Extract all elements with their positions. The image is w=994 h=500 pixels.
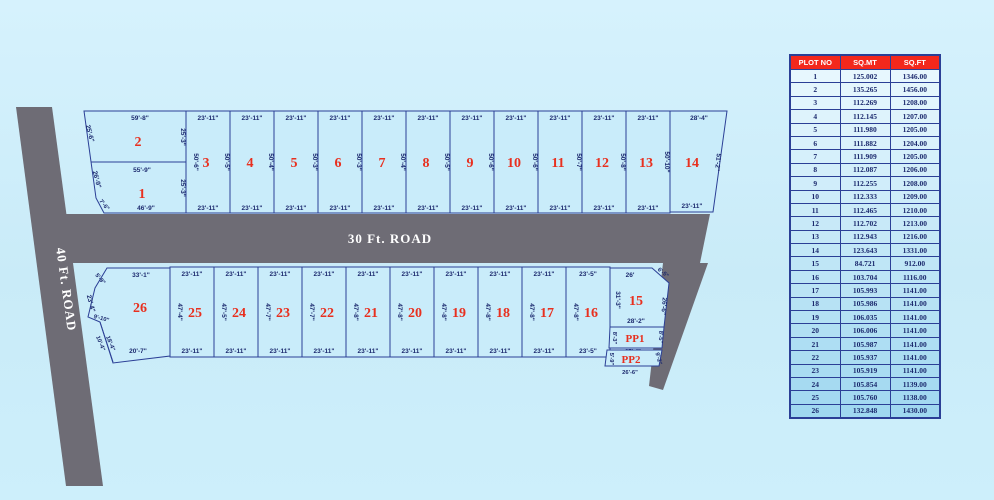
plot-12-number: 12 (595, 156, 609, 171)
table-cell: 10 (790, 190, 840, 203)
table-row: 4112.1451207.00 (790, 110, 940, 123)
plot-19-dim-left: 47'-8" (440, 303, 447, 321)
table-cell: 16 (790, 270, 840, 283)
table-cell: 18 (790, 297, 840, 310)
table-cell: 112.087 (840, 163, 890, 176)
table-row: 11112.4651210.00 (790, 203, 940, 216)
plot-18-dim-top: 23'-11" (490, 271, 511, 278)
plot-17-dim-bottom: 23'-11" (534, 348, 555, 355)
site-plan-canvas: 40 Ft. ROAD 30 Ft. ROAD 59'-8" 2 25'-3" … (0, 0, 994, 500)
plot-16-dim-left: 47'-8" (572, 303, 579, 321)
table-row: 1584.721912.00 (790, 257, 940, 270)
plot-26-dim-bottom: 20'-7" (129, 348, 147, 355)
plot-15-dim-left: 31'-3" (614, 291, 621, 309)
table-cell: 105.919 (840, 364, 890, 377)
table-row: 22105.9371141.00 (790, 351, 940, 364)
table-cell: 1141.00 (890, 324, 940, 337)
plot-21-dim-bottom: 23'-11" (358, 348, 379, 355)
plot-pp2-dim-left: 5'-9" (608, 353, 614, 366)
plot-19-number: 19 (452, 306, 466, 321)
plot-8-dim-right: 50'-5" (443, 153, 450, 171)
table-cell: 1205.00 (890, 123, 940, 136)
plot-2-dim-top: 59'-8" (131, 115, 149, 122)
plot-17-dim-top: 23'-11" (534, 271, 555, 278)
table-header-row: PLOT NOSQ.MTSQ.FT (790, 55, 940, 70)
table-cell: 22 (790, 351, 840, 364)
table-header-cell: PLOT NO (790, 55, 840, 70)
plot-15-number: 15 (629, 294, 643, 309)
table-cell: 123.643 (840, 244, 890, 257)
table-cell: 7 (790, 150, 840, 163)
plot-12-dim-right: 50'-8" (619, 153, 626, 171)
plot-17-dim-left: 47'-8" (528, 303, 535, 321)
table-cell: 912.00 (890, 257, 940, 270)
plot-pp2-number: PP2 (622, 354, 641, 366)
table-row: 9112.2551208.00 (790, 177, 940, 190)
table-cell: 2 (790, 83, 840, 96)
plot-13-dim-bottom: 23'-11" (638, 205, 659, 212)
table-cell: 112.333 (840, 190, 890, 203)
table-row: 10112.3331209.00 (790, 190, 940, 203)
table-cell: 1331.00 (890, 244, 940, 257)
plot-26-group: 33'-1" 5'-9" 23'-4" 9'-10" 10'-4" 18'-4"… (85, 268, 170, 363)
table-row: 1125.0021346.00 (790, 70, 940, 83)
table-cell: 1 (790, 70, 840, 83)
table-cell: 111.909 (840, 150, 890, 163)
plot-5-dim-top: 23'-11" (286, 115, 307, 122)
table-row: 12112.7021213.00 (790, 217, 940, 230)
plot-24-dim-bottom: 23'-11" (226, 348, 247, 355)
table-cell: 111.980 (840, 123, 890, 136)
plot-5-dim-right: 50'-3" (311, 153, 318, 171)
table-cell: 1430.00 (890, 404, 940, 418)
table-cell: 112.255 (840, 177, 890, 190)
table-cell: 106.006 (840, 324, 890, 337)
plot-7-dim-right: 50'-4" (399, 153, 406, 171)
plot-14-dim-bottom: 23'-11" (682, 203, 703, 210)
table-cell: 25 (790, 391, 840, 404)
plot-3-dim-left: 50'-6" (192, 153, 199, 171)
table-row: 21105.9871141.00 (790, 337, 940, 350)
road-30ft-label: 30 Ft. ROAD (348, 231, 432, 246)
plot-3-dim-top: 23'-11" (198, 115, 219, 122)
table-cell: 105.993 (840, 284, 890, 297)
table-row: 24105.8541139.00 (790, 377, 940, 390)
table-cell: 135.265 (840, 83, 890, 96)
plot-8-dim-top: 23'-11" (418, 115, 439, 122)
table-cell: 17 (790, 284, 840, 297)
table-cell: 6 (790, 136, 840, 149)
plot-12-dim-bottom: 23'-11" (594, 205, 615, 212)
table-cell: 1205.00 (890, 150, 940, 163)
table-row: 19106.0351141.00 (790, 311, 940, 324)
table-cell: 1141.00 (890, 351, 940, 364)
table-row: 18105.9861141.00 (790, 297, 940, 310)
table-cell: 3 (790, 96, 840, 109)
plot-13-dim-right: 50'-10" (663, 151, 670, 172)
plot-18-dim-bottom: 23'-11" (490, 348, 511, 355)
table-cell: 103.704 (840, 270, 890, 283)
table-cell: 1141.00 (890, 284, 940, 297)
plot-16-dim-top: 23'-5" (579, 271, 597, 278)
plot-25-dim-top: 23'-11" (182, 271, 203, 278)
table-row: 8112.0871206.00 (790, 163, 940, 176)
plot-14-dim-top: 28'-4" (690, 115, 708, 122)
plot-10-dim-top: 23'-11" (506, 115, 527, 122)
table-cell: 5 (790, 123, 840, 136)
table-row: 25105.7601138.00 (790, 391, 940, 404)
plot-5-dim-bottom: 23'-11" (286, 205, 307, 212)
plot-7-number: 7 (379, 156, 386, 171)
table-cell: 12 (790, 217, 840, 230)
table-header-cell: SQ.MT (840, 55, 890, 70)
table-cell: 112.465 (840, 203, 890, 216)
table-cell: 112.943 (840, 230, 890, 243)
table-cell: 112.145 (840, 110, 890, 123)
table-cell: 105.986 (840, 297, 890, 310)
plot-20-dim-bottom: 23'-11" (402, 348, 423, 355)
table-cell: 84.721 (840, 257, 890, 270)
plot-22-dim-bottom: 23'-11" (314, 348, 335, 355)
plot-pp2-dim-bottom: 26'-6" (622, 370, 638, 376)
table-cell: 106.035 (840, 311, 890, 324)
plot-9-dim-top: 23'-11" (462, 115, 483, 122)
table-row: 6111.8821204.00 (790, 136, 940, 149)
plot-4-dim-bottom: 23'-11" (242, 205, 263, 212)
plot-2-number: 2 (135, 135, 142, 150)
table-cell: 1139.00 (890, 377, 940, 390)
plot-4-dim-right: 50'-4" (267, 153, 274, 171)
plot-25-dim-bottom: 23'-11" (182, 348, 203, 355)
plot-19-dim-top: 23'-11" (446, 271, 467, 278)
table-cell: 19 (790, 311, 840, 324)
plot-1-dim-top: 55'-9" (133, 167, 151, 174)
table-cell: 1138.00 (890, 391, 940, 404)
plot-26-dim-diag-a: 10'-4" (94, 335, 106, 352)
table-cell: 112.269 (840, 96, 890, 109)
plot-1-dim-right: 25'-3" (179, 179, 186, 197)
plot-15-group: 26' 6'-5" 31'-3" 26'-6" 15 28'-2" (610, 267, 670, 327)
plot-2-dim-right: 25'-3" (179, 128, 186, 146)
table-cell: 132.848 (840, 404, 890, 418)
plot-3-number: 3 (203, 156, 210, 171)
table-cell: 13 (790, 230, 840, 243)
plot-12-dim-top: 23'-11" (594, 115, 615, 122)
plot-3-dim-right: 50'-5" (223, 153, 230, 171)
table-cell: 9 (790, 177, 840, 190)
plot-20-number: 20 (408, 306, 422, 321)
table-cell: 105.937 (840, 351, 890, 364)
area-table: PLOT NOSQ.MTSQ.FT1125.0021346.002135.265… (789, 54, 941, 419)
plot-pp1-dim-right: 8'-5" (657, 331, 663, 344)
plot-5-number: 5 (291, 156, 298, 171)
table-cell: 1141.00 (890, 337, 940, 350)
table-row: 16103.7041116.00 (790, 270, 940, 283)
plot-6-dim-bottom: 23'-11" (330, 205, 351, 212)
plot-11-dim-right: 50'-7" (575, 153, 582, 171)
area-table-wrap: PLOT NOSQ.MTSQ.FT1125.0021346.002135.265… (789, 54, 941, 419)
table-cell: 1346.00 (890, 70, 940, 83)
table-cell: 1209.00 (890, 190, 940, 203)
plot-10-dim-right: 50'-6" (531, 153, 538, 171)
table-cell: 24 (790, 377, 840, 390)
table-row: 14123.6431331.00 (790, 244, 940, 257)
plot-block-1-2: 59'-8" 2 25'-3" 25'-6" 55'-9" 1 25'-3" 2… (84, 111, 186, 213)
table-cell: 20 (790, 324, 840, 337)
plot-9-dim-right: 50'-6" (487, 153, 494, 171)
plot-15-dim-bottom: 28'-2" (627, 318, 645, 325)
table-cell: 11 (790, 203, 840, 216)
table-cell: 1141.00 (890, 311, 940, 324)
plot-14-group: 28'-4" 14 51'-2" 23'-11" (670, 111, 727, 212)
plot-18-dim-left: 47'-8" (484, 303, 491, 321)
plot-26-dim-top: 33'-1" (132, 272, 150, 279)
plot-13-number: 13 (639, 156, 653, 171)
plot-22-dim-top: 23'-11" (314, 271, 335, 278)
table-cell: 8 (790, 163, 840, 176)
table-cell: 1116.00 (890, 270, 940, 283)
plot-19-dim-bottom: 23'-11" (446, 348, 467, 355)
table-cell: 23 (790, 364, 840, 377)
table-cell: 15 (790, 257, 840, 270)
table-row: 17105.9931141.00 (790, 284, 940, 297)
plot-26-number: 26 (133, 301, 147, 316)
plot-15-dim-top: 26' (626, 272, 635, 279)
table-cell: 4 (790, 110, 840, 123)
table-row: 20106.0061141.00 (790, 324, 940, 337)
plot-1-number: 1 (139, 187, 146, 202)
table-row: 3112.2691208.00 (790, 96, 940, 109)
plot-21-dim-left: 47'-8" (352, 303, 359, 321)
table-cell: 1210.00 (890, 203, 940, 216)
table-cell: 111.882 (840, 136, 890, 149)
table-cell: 1204.00 (890, 136, 940, 149)
plot-24-number: 24 (232, 306, 246, 321)
plot-1-dim-bottom: 46'-9" (137, 205, 155, 212)
plot-23-dim-top: 23'-11" (270, 271, 291, 278)
table-row: 2135.2651456.00 (790, 83, 940, 96)
plot-6-number: 6 (335, 156, 342, 171)
plot-22-number: 22 (320, 306, 334, 321)
table-cell: 105.987 (840, 337, 890, 350)
table-cell: 125.002 (840, 70, 890, 83)
table-cell: 21 (790, 337, 840, 350)
plot-8-number: 8 (423, 156, 430, 171)
plot-4-dim-top: 23'-11" (242, 115, 263, 122)
plot-24-dim-top: 23'-11" (226, 271, 247, 278)
table-cell: 112.702 (840, 217, 890, 230)
plot-23-dim-left: 47'-7" (264, 303, 271, 321)
table-cell: 14 (790, 244, 840, 257)
table-cell: 1456.00 (890, 83, 940, 96)
plot-9-number: 9 (467, 156, 474, 171)
table-cell: 105.854 (840, 377, 890, 390)
plot-6-dim-top: 23'-11" (330, 115, 351, 122)
table-cell: 1141.00 (890, 364, 940, 377)
table-cell: 26 (790, 404, 840, 418)
plot-14-number: 14 (685, 156, 699, 171)
plot-21-dim-top: 23'-11" (358, 271, 379, 278)
plot-20-dim-left: 47'-8" (396, 303, 403, 321)
plot-6-dim-right: 50'-3" (355, 153, 362, 171)
plot-9-dim-bottom: 23'-11" (462, 205, 483, 212)
plot-11-number: 11 (551, 156, 564, 171)
plot-23-dim-bottom: 23'-11" (270, 348, 291, 355)
table-row: 26132.8481430.00 (790, 404, 940, 418)
table-cell: 1208.00 (890, 96, 940, 109)
plot-25-dim-left: 47'-4" (176, 303, 183, 321)
table-cell: 105.760 (840, 391, 890, 404)
plot-21-number: 21 (364, 306, 378, 321)
table-row: 7111.9091205.00 (790, 150, 940, 163)
table-header-cell: SQ.FT (890, 55, 940, 70)
plot-13-dim-top: 23'-11" (638, 115, 659, 122)
table-cell: 1141.00 (890, 297, 940, 310)
table-row: 13112.9431216.00 (790, 230, 940, 243)
plot-17-number: 17 (540, 306, 554, 321)
plot-4-number: 4 (247, 156, 254, 171)
table-cell: 1207.00 (890, 110, 940, 123)
table-row: 5111.9801205.00 (790, 123, 940, 136)
table-cell: 1216.00 (890, 230, 940, 243)
plot-7-dim-bottom: 23'-11" (374, 205, 395, 212)
table-row: 23105.9191141.00 (790, 364, 940, 377)
plot-18-number: 18 (496, 306, 510, 321)
table-cell: 1208.00 (890, 177, 940, 190)
table-cell: 1213.00 (890, 217, 940, 230)
plot-24-dim-left: 47'-5" (220, 303, 227, 321)
plot-8-dim-bottom: 23'-11" (418, 205, 439, 212)
plot-3-dim-bottom: 23'-11" (198, 205, 219, 212)
plot-22-dim-left: 47'-7" (308, 303, 315, 321)
plot-23-number: 23 (276, 306, 290, 321)
plot-16-number: 16 (584, 306, 598, 321)
plot-10-number: 10 (507, 156, 521, 171)
plot-11-dim-top: 23'-11" (550, 115, 571, 122)
plot-10-dim-bottom: 23'-11" (506, 205, 527, 212)
plot-20-dim-top: 23'-11" (402, 271, 423, 278)
plot-7-dim-top: 23'-11" (374, 115, 395, 122)
plot-pp1-dim-left: 8'-3" (611, 332, 617, 345)
plot-25-number: 25 (188, 306, 202, 321)
plot-16-dim-bottom: 23'-5" (579, 348, 597, 355)
plot-11-dim-bottom: 23'-11" (550, 205, 571, 212)
table-cell: 1206.00 (890, 163, 940, 176)
plot-pp1-number: PP1 (626, 333, 645, 345)
